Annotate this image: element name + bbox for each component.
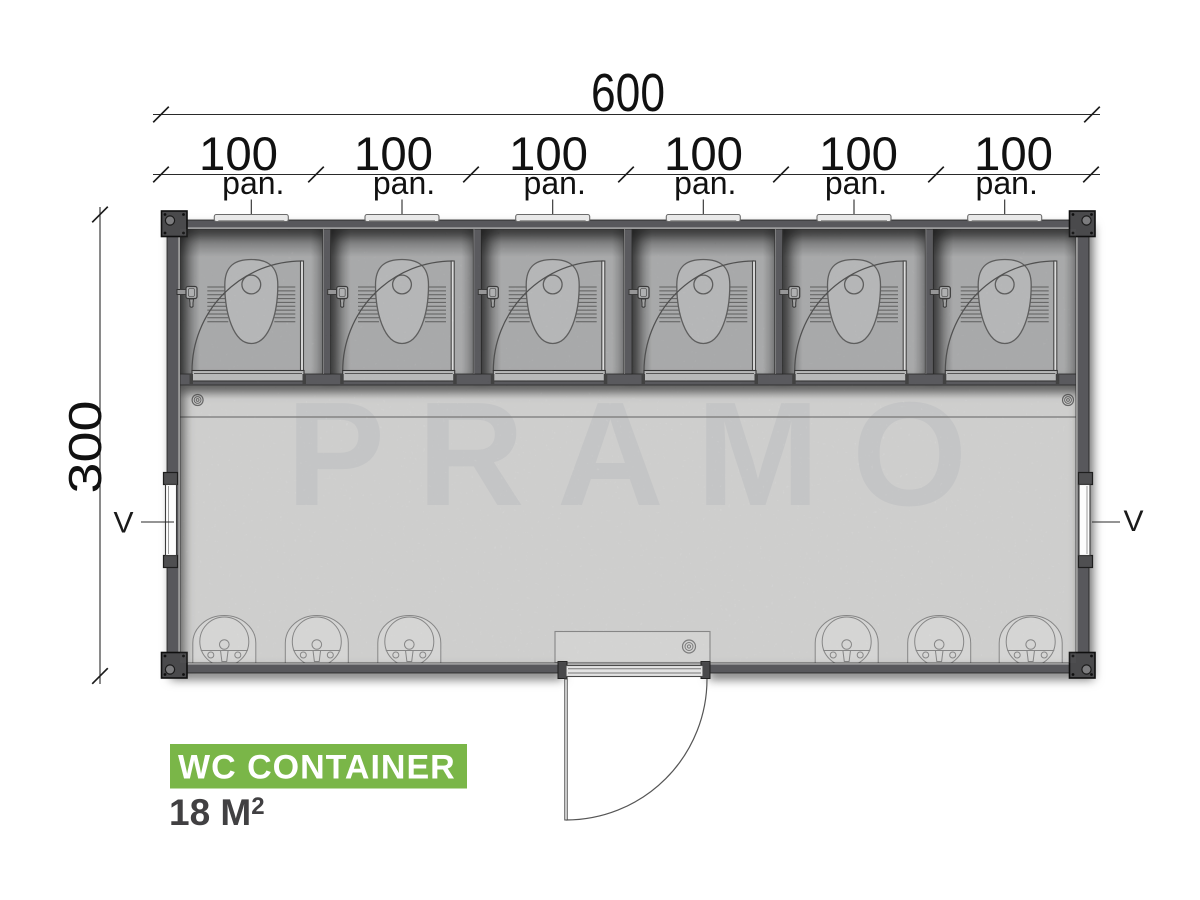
svg-text:pan.: pan. [825, 165, 887, 201]
svg-text:pan.: pan. [222, 165, 284, 201]
svg-text:300: 300 [59, 401, 111, 494]
svg-text:V: V [113, 507, 133, 540]
svg-text:pan.: pan. [976, 165, 1038, 201]
svg-text:pan.: pan. [373, 165, 435, 201]
svg-text:WC CONTAINER: WC CONTAINER [178, 749, 456, 787]
svg-text:V: V [1123, 505, 1143, 538]
svg-text:pan.: pan. [674, 165, 736, 201]
svg-text:pan.: pan. [524, 165, 586, 201]
svg-text:18 M2: 18 M2 [169, 792, 265, 833]
svg-text:600: 600 [591, 63, 665, 123]
